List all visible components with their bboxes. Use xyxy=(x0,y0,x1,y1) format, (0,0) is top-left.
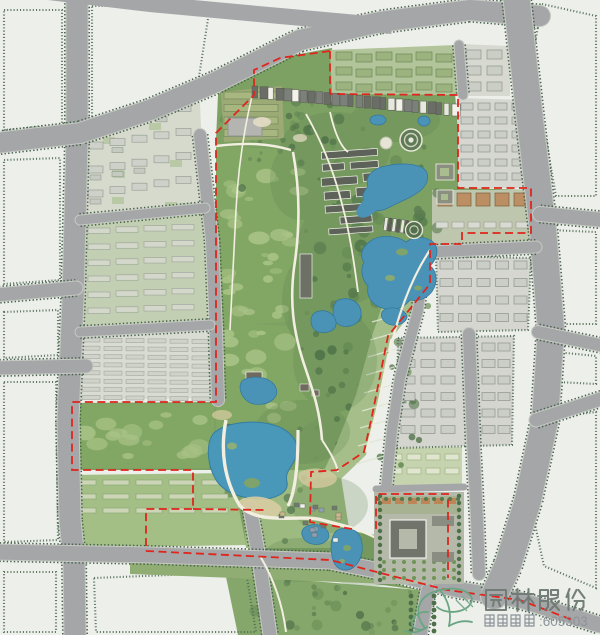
svg-text::605303: :605303 xyxy=(539,614,588,629)
